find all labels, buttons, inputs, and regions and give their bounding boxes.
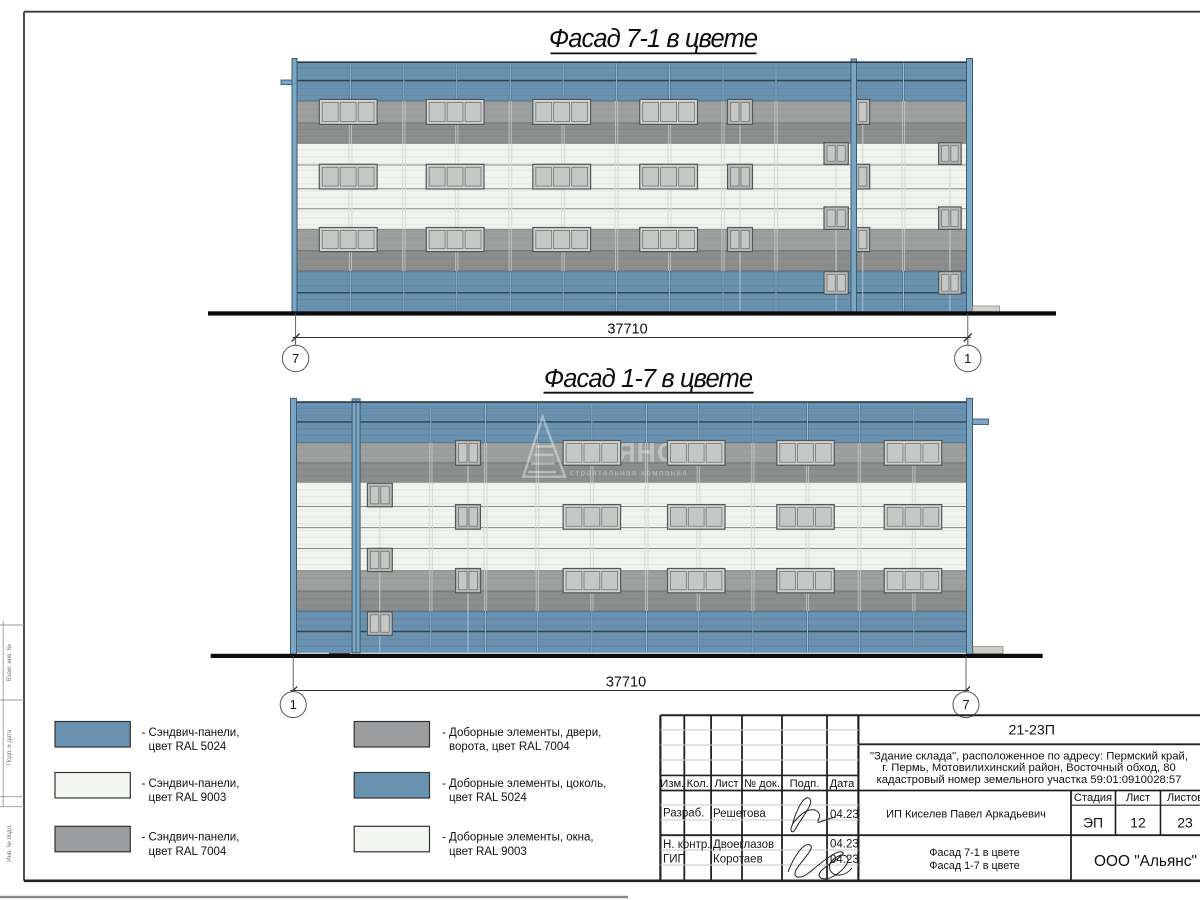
svg-text:04.23: 04.23 bbox=[830, 854, 859, 866]
svg-text:Фасад 1-7 в цвете: Фасад 1-7 в цвете bbox=[929, 860, 1020, 872]
svg-text:г. Пермь, Мотовилихинский райо: г. Пермь, Мотовилихинский район, Восточн… bbox=[882, 762, 1176, 774]
svg-text:Фасад 7-1 в цвете: Фасад 7-1 в цвете bbox=[549, 25, 758, 53]
svg-text:ворота, цвет RAL 7004: ворота, цвет RAL 7004 bbox=[449, 741, 570, 753]
svg-text:Фасад 1-7 в цвете: Фасад 1-7 в цвете bbox=[544, 365, 753, 393]
svg-text:- Доборные элементы, цоколь,: - Доборные элементы, цоколь, bbox=[442, 778, 606, 790]
svg-text:Кол.: Кол. bbox=[687, 778, 709, 790]
svg-text:Дата: Дата bbox=[830, 778, 856, 790]
svg-text:37710: 37710 bbox=[607, 322, 647, 338]
svg-text:- Сэндвич-панели,: - Сэндвич-панели, bbox=[142, 832, 240, 844]
svg-text:цвет RAL 9003: цвет RAL 9003 bbox=[449, 846, 527, 858]
svg-text:ГИП: ГИП bbox=[663, 853, 686, 865]
svg-text:строительная компания: строительная компания bbox=[570, 468, 688, 477]
svg-text:Решетова: Решетова bbox=[713, 808, 766, 820]
svg-text:цвет RAL 5024: цвет RAL 5024 bbox=[149, 741, 227, 753]
svg-text:ЭП: ЭП bbox=[1083, 815, 1103, 831]
svg-text:Двоеглазов: Двоеглазов bbox=[713, 839, 774, 851]
svg-text:№ док.: № док. bbox=[744, 778, 780, 790]
svg-text:- Доборные элементы, окна,: - Доборные элементы, окна, bbox=[442, 832, 594, 844]
svg-text:Н. контр.: Н. контр. bbox=[663, 839, 710, 851]
svg-text:цвет RAL 9003: цвет RAL 9003 bbox=[149, 792, 227, 804]
svg-text:- Сэндвич-панели,: - Сэндвич-панели, bbox=[142, 778, 240, 790]
svg-text:1: 1 bbox=[964, 351, 971, 366]
svg-text:- Сэндвич-панели,: - Сэндвич-панели, bbox=[142, 727, 240, 739]
svg-text:Подп.: Подп. bbox=[790, 778, 820, 790]
svg-text:цвет RAL 7004: цвет RAL 7004 bbox=[149, 846, 227, 858]
svg-text:Инв. № подл.: Инв. № подл. bbox=[6, 824, 13, 862]
svg-text:12: 12 bbox=[1130, 815, 1146, 831]
svg-text:37710: 37710 bbox=[606, 675, 646, 691]
svg-text:цвет RAL 5024: цвет RAL 5024 bbox=[449, 792, 527, 804]
svg-text:Фасад 7-1 в цвете: Фасад 7-1 в цвете bbox=[929, 847, 1020, 859]
svg-text:ООО "Альянс": ООО "Альянс" bbox=[1094, 853, 1197, 870]
svg-text:Взам. инв. №: Взам. инв. № bbox=[6, 644, 13, 681]
svg-text:- Доборные элементы, двери,: - Доборные элементы, двери, bbox=[442, 727, 601, 739]
svg-text:04.23: 04.23 bbox=[830, 809, 859, 821]
svg-text:Лист: Лист bbox=[1126, 792, 1150, 804]
svg-text:ИП Киселев Павел Аркадьевич: ИП Киселев Павел Аркадьевич bbox=[886, 809, 1046, 821]
svg-text:Подп. и дата: Подп. и дата bbox=[7, 729, 13, 765]
svg-text:23: 23 bbox=[1177, 815, 1193, 831]
svg-text:"Здание склада", расположенное: "Здание склада", расположенное по адресу… bbox=[870, 750, 1188, 762]
svg-text:7: 7 bbox=[292, 351, 299, 366]
svg-text:Лист: Лист bbox=[714, 778, 738, 790]
svg-text:7: 7 bbox=[962, 697, 969, 712]
svg-text:1: 1 bbox=[290, 697, 297, 712]
svg-text:Стадия: Стадия bbox=[1074, 792, 1112, 804]
svg-text:Разраб.: Разраб. bbox=[663, 808, 704, 820]
svg-text:04.23: 04.23 bbox=[830, 839, 859, 851]
svg-text:Изм.: Изм. bbox=[660, 778, 684, 790]
svg-text:кадастровый номер земельного у: кадастровый номер земельного участка 59:… bbox=[877, 774, 1182, 786]
svg-text:Коротаев: Коротаев bbox=[713, 853, 763, 865]
svg-text:Листов: Листов bbox=[1167, 792, 1200, 804]
svg-text:21-23П: 21-23П bbox=[1008, 723, 1054, 739]
